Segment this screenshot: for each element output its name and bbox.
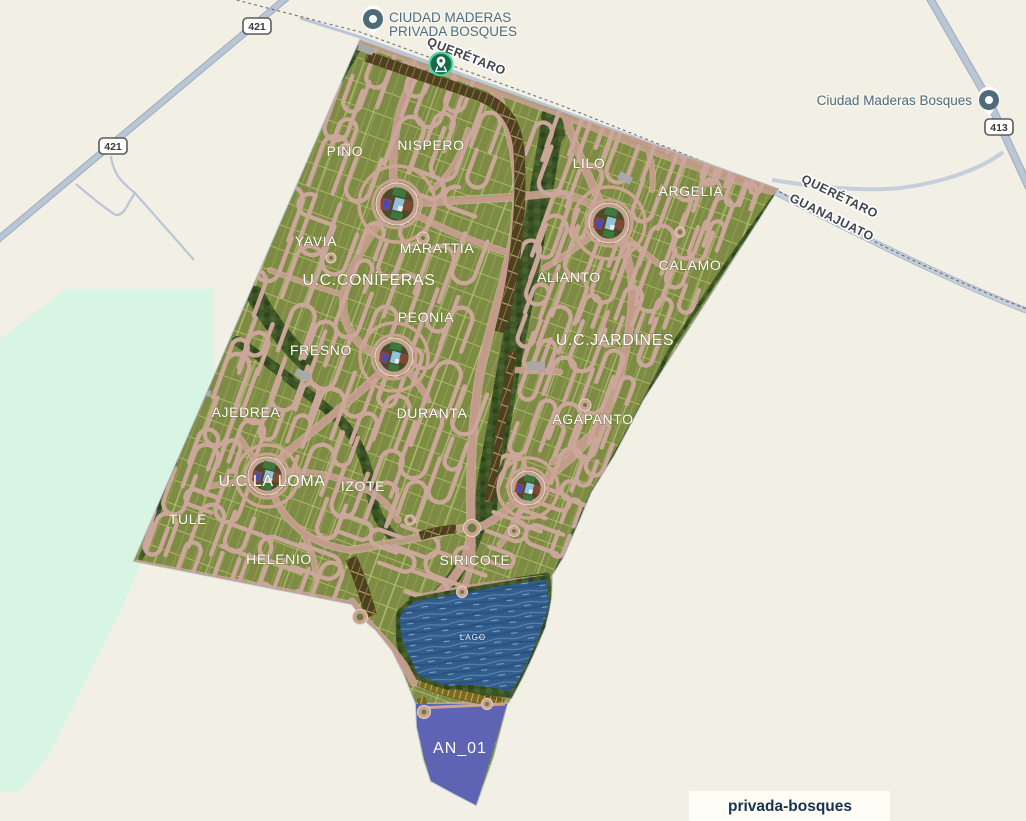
svg-text:IZOTE: IZOTE xyxy=(341,478,385,494)
svg-text:PINO: PINO xyxy=(327,143,364,159)
svg-text:TULE: TULE xyxy=(169,511,207,527)
svg-text:privada-bosques: privada-bosques xyxy=(728,798,852,815)
svg-text:PEONIA: PEONIA xyxy=(398,309,455,325)
svg-text:DURANTA: DURANTA xyxy=(397,405,468,421)
svg-text:LILO: LILO xyxy=(573,155,606,171)
svg-text:NISPERO: NISPERO xyxy=(397,137,464,153)
svg-text:SIRICOTE: SIRICOTE xyxy=(440,552,511,568)
svg-text:421: 421 xyxy=(104,141,122,153)
svg-text:U.C.LA LOMA: U.C.LA LOMA xyxy=(218,473,325,490)
svg-text:U.C.CONÍFERAS: U.C.CONÍFERAS xyxy=(302,270,435,289)
svg-text:FRESNO: FRESNO xyxy=(290,342,352,358)
svg-text:ARGELIA: ARGELIA xyxy=(659,183,724,199)
svg-text:Ciudad Maderas Bosques: Ciudad Maderas Bosques xyxy=(817,93,973,108)
svg-text:YAVIA: YAVIA xyxy=(295,233,337,249)
svg-text:AN_01: AN_01 xyxy=(433,740,487,757)
svg-text:HELENIO: HELENIO xyxy=(246,551,312,567)
svg-text:AJEDREA: AJEDREA xyxy=(212,404,281,420)
svg-text:AGAPANTO: AGAPANTO xyxy=(552,411,633,427)
svg-text:421: 421 xyxy=(248,21,266,33)
svg-text:CALAMO: CALAMO xyxy=(659,257,722,273)
svg-text:PRIVADA BOSQUES: PRIVADA BOSQUES xyxy=(389,24,517,39)
svg-text:LAGO: LAGO xyxy=(460,633,486,642)
svg-text:413: 413 xyxy=(990,122,1008,134)
svg-text:CIUDAD MADERAS: CIUDAD MADERAS xyxy=(389,10,511,25)
svg-text:ALIANTO: ALIANTO xyxy=(537,269,601,285)
svg-text:U.C.JARDINES: U.C.JARDINES xyxy=(556,332,674,349)
svg-text:MARATTIA: MARATTIA xyxy=(400,240,475,256)
